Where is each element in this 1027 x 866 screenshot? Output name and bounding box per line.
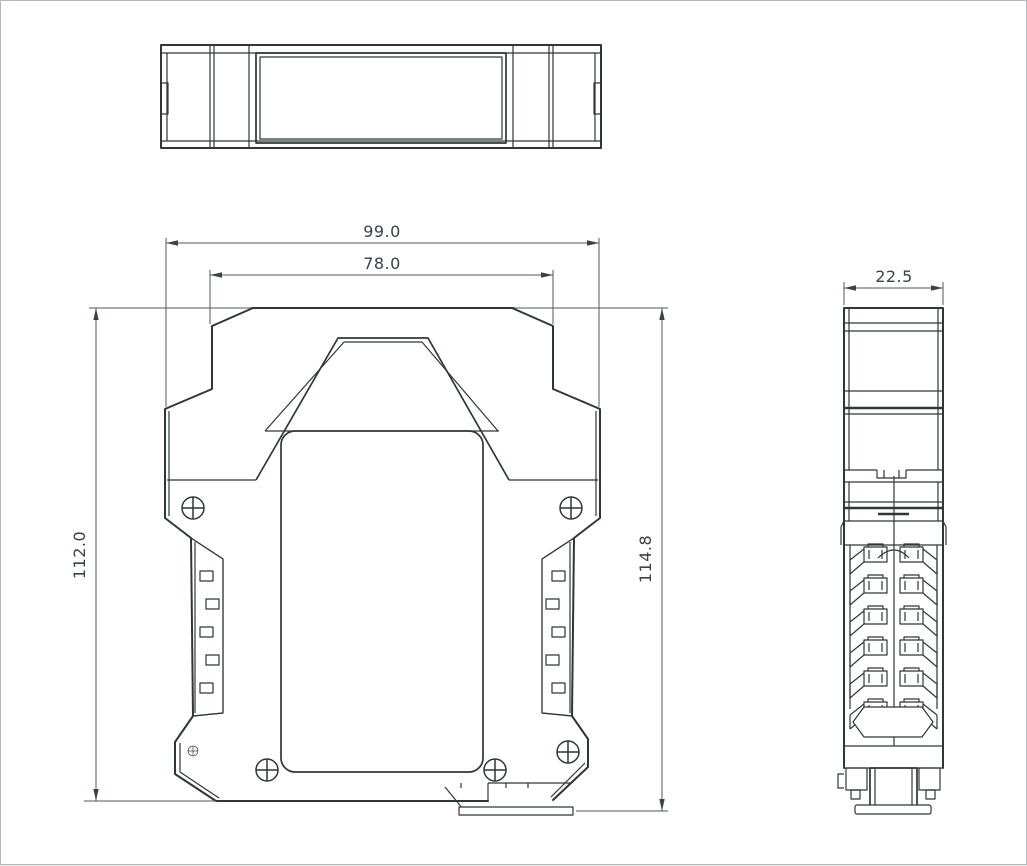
technical-drawing: 99.0 78.0 112.0 114.8 [1,1,1027,866]
dim-total-height: 114.8 [636,308,665,811]
screw-icon [182,497,204,519]
side-view [838,308,946,814]
screw-icon [560,497,582,519]
dim-label-top-width: 78.0 [363,254,401,273]
din-rail-clip [838,746,943,814]
dim-body-height: 112.0 [70,308,99,801]
drawing-sheet: 99.0 78.0 112.0 114.8 [0,0,1027,865]
dim-label-total-height: 114.8 [636,535,655,583]
screw-icon [256,759,278,781]
dim-label-body-height: 112.0 [70,531,89,579]
front-view [165,308,600,815]
screw-icon [557,741,579,763]
terminal-block-end [853,707,933,737]
dim-depth: 22.5 [844,267,943,305]
top-view-housing-outline [161,45,601,148]
terminal-block-stack [850,476,937,746]
top-view [161,45,601,148]
dim-label-depth: 22.5 [875,267,913,286]
center-panel [281,431,483,772]
screw-icon-small [188,746,198,756]
dim-label-overall-width: 99.0 [363,222,401,241]
screw-icon [484,759,506,781]
